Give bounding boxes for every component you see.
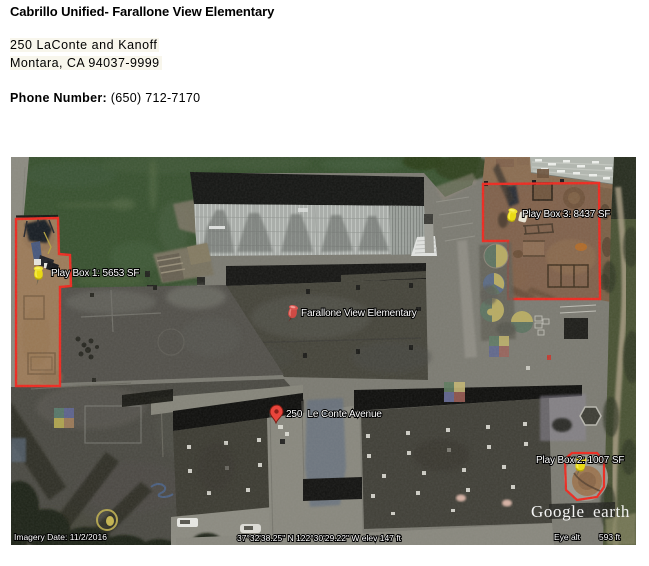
svg-text:Play Box 2: 1007 SF: Play Box 2: 1007 SF — [536, 455, 624, 466]
svg-text:earth: earth — [593, 502, 630, 521]
svg-text:Eye alt 593 ft: Eye alt 593 ft — [554, 532, 621, 542]
svg-text:Play Box 3: 8437 SF: Play Box 3: 8437 SF — [522, 209, 610, 220]
svg-text:Imagery Date: 11/2/2016: Imagery Date: 11/2/2016 — [14, 532, 107, 542]
svg-text:250 Le Conte Avenue: 250 Le Conte Avenue — [286, 409, 382, 420]
svg-text:Farallone View Elementary: Farallone View Elementary — [301, 308, 417, 319]
svg-text:Google: Google — [531, 502, 585, 521]
svg-text:37°32'38.25" N 122°30'29.22": 37°32'38.25" N 122°30'29.22" W elev 147 … — [237, 533, 402, 543]
svg-text:Play Box 1: 5653 SF: Play Box 1: 5653 SF — [51, 268, 139, 279]
